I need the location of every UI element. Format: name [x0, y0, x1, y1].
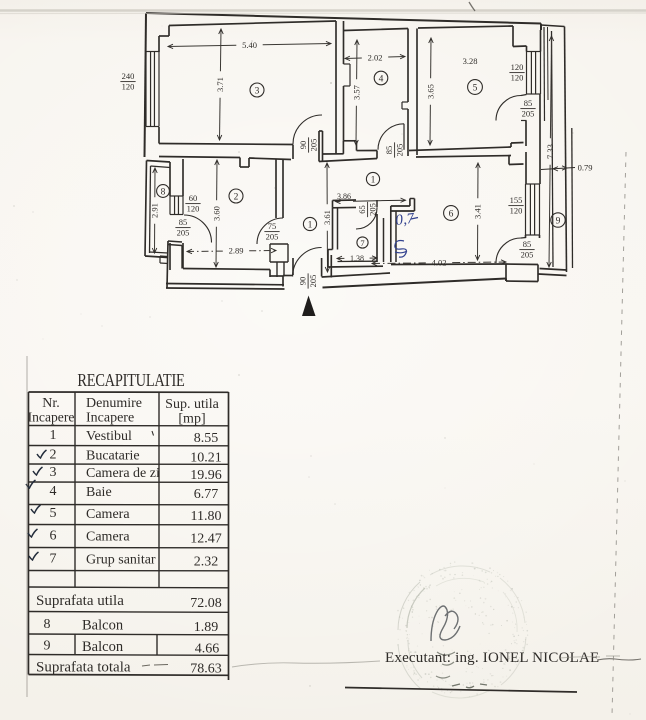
svg-text:3.28: 3.28: [463, 56, 478, 66]
svg-text:205: 205: [266, 232, 279, 242]
svg-text:2: 2: [50, 448, 57, 463]
svg-text:85: 85: [523, 239, 532, 249]
svg-text:3.60: 3.60: [211, 206, 221, 221]
svg-text:RECAPITULATIE: RECAPITULATIE: [77, 369, 184, 390]
svg-text:[mp]: [mp]: [178, 412, 205, 427]
svg-text:Executant: ing. IONEL NICOLAE: Executant: ing. IONEL NICOLAE: [385, 650, 599, 666]
svg-text:60: 60: [189, 193, 198, 203]
svg-text:90: 90: [298, 141, 308, 150]
svg-text:8: 8: [161, 187, 166, 197]
svg-text:5: 5: [473, 83, 478, 93]
svg-text:6: 6: [449, 209, 454, 219]
svg-text:8.55: 8.55: [194, 431, 219, 446]
svg-text:205: 205: [395, 144, 405, 157]
svg-text:Denumire: Denumire: [86, 396, 142, 411]
svg-text:120: 120: [510, 206, 523, 216]
svg-text:Incapere: Incapere: [86, 411, 134, 426]
svg-text:72.08: 72.08: [190, 596, 222, 611]
svg-text:Camera: Camera: [86, 507, 130, 522]
svg-text:120: 120: [187, 204, 200, 214]
svg-text:2.91: 2.91: [150, 203, 160, 218]
svg-text:Baie: Baie: [86, 485, 112, 500]
svg-text:7.33: 7.33: [545, 144, 555, 159]
svg-text:7: 7: [50, 552, 57, 567]
svg-text:240: 240: [122, 71, 135, 81]
svg-text:19.96: 19.96: [190, 468, 222, 483]
svg-text:10.21: 10.21: [190, 451, 222, 466]
svg-text:0.79: 0.79: [578, 163, 593, 173]
svg-text:65: 65: [357, 205, 367, 214]
svg-text:1.89: 1.89: [194, 620, 219, 635]
svg-text:8: 8: [44, 617, 51, 632]
svg-text:1: 1: [308, 220, 313, 230]
svg-text:4.02: 4.02: [432, 258, 447, 268]
svg-text:Balcon: Balcon: [82, 639, 124, 655]
svg-text:Suprafata totala: Suprafata totala: [36, 660, 131, 676]
svg-text:1: 1: [50, 428, 57, 443]
svg-text:6: 6: [50, 529, 57, 544]
svg-text:5.40: 5.40: [242, 40, 257, 50]
svg-text:205: 205: [308, 275, 318, 288]
svg-text:Sup. utila: Sup. utila: [165, 397, 219, 412]
svg-text:90: 90: [297, 277, 307, 286]
svg-text:205: 205: [368, 203, 378, 216]
svg-text:155: 155: [510, 195, 523, 205]
svg-text:2.02: 2.02: [368, 52, 383, 62]
svg-text:3.65: 3.65: [425, 84, 435, 99]
svg-text:2: 2: [234, 192, 239, 202]
svg-text:205: 205: [522, 109, 535, 119]
svg-text:3.57: 3.57: [351, 85, 361, 100]
svg-text:9: 9: [556, 216, 561, 226]
svg-text:11.80: 11.80: [191, 509, 222, 524]
svg-text:1: 1: [371, 175, 376, 185]
svg-text:75: 75: [268, 221, 277, 231]
svg-text:5: 5: [50, 506, 57, 521]
svg-text:120: 120: [122, 82, 135, 92]
svg-text:3: 3: [255, 86, 260, 96]
svg-text:205: 205: [177, 228, 190, 238]
svg-text:Camera: Camera: [86, 530, 130, 545]
svg-text:3.71: 3.71: [215, 77, 225, 92]
svg-text:4.66: 4.66: [195, 642, 220, 657]
svg-text:205: 205: [309, 139, 319, 152]
svg-text:Bucatarie: Bucatarie: [86, 449, 140, 464]
svg-text:Incapere: Incapere: [28, 410, 75, 425]
svg-text:Camera de zi: Camera de zi: [86, 466, 160, 481]
svg-text:2.89: 2.89: [229, 246, 244, 256]
svg-text:85: 85: [524, 98, 533, 108]
svg-text:7: 7: [360, 238, 364, 248]
svg-text:4: 4: [379, 74, 384, 84]
svg-text:85: 85: [384, 146, 394, 155]
svg-text:Vestibul: Vestibul: [86, 429, 132, 444]
svg-text:1.38: 1.38: [350, 254, 364, 263]
svg-text:3: 3: [50, 465, 57, 480]
svg-text:6.77: 6.77: [194, 487, 219, 502]
svg-text:Grup sanitar: Grup sanitar: [86, 553, 156, 568]
svg-text:3.61: 3.61: [322, 210, 332, 225]
svg-text:12.47: 12.47: [190, 532, 222, 547]
svg-text:4: 4: [50, 484, 57, 499]
svg-text:120: 120: [511, 73, 524, 83]
svg-text:3.41: 3.41: [473, 204, 483, 219]
svg-text:120: 120: [511, 62, 524, 72]
svg-text:2.32: 2.32: [194, 555, 219, 570]
svg-text:Suprafata utila: Suprafata utila: [36, 593, 124, 609]
svg-text:0,7: 0,7: [395, 211, 417, 229]
svg-text:Balcon: Balcon: [82, 618, 124, 634]
svg-text:78.63: 78.63: [190, 662, 222, 677]
svg-text:205: 205: [521, 250, 534, 260]
svg-text:85: 85: [179, 217, 188, 227]
svg-text:9: 9: [44, 639, 51, 654]
